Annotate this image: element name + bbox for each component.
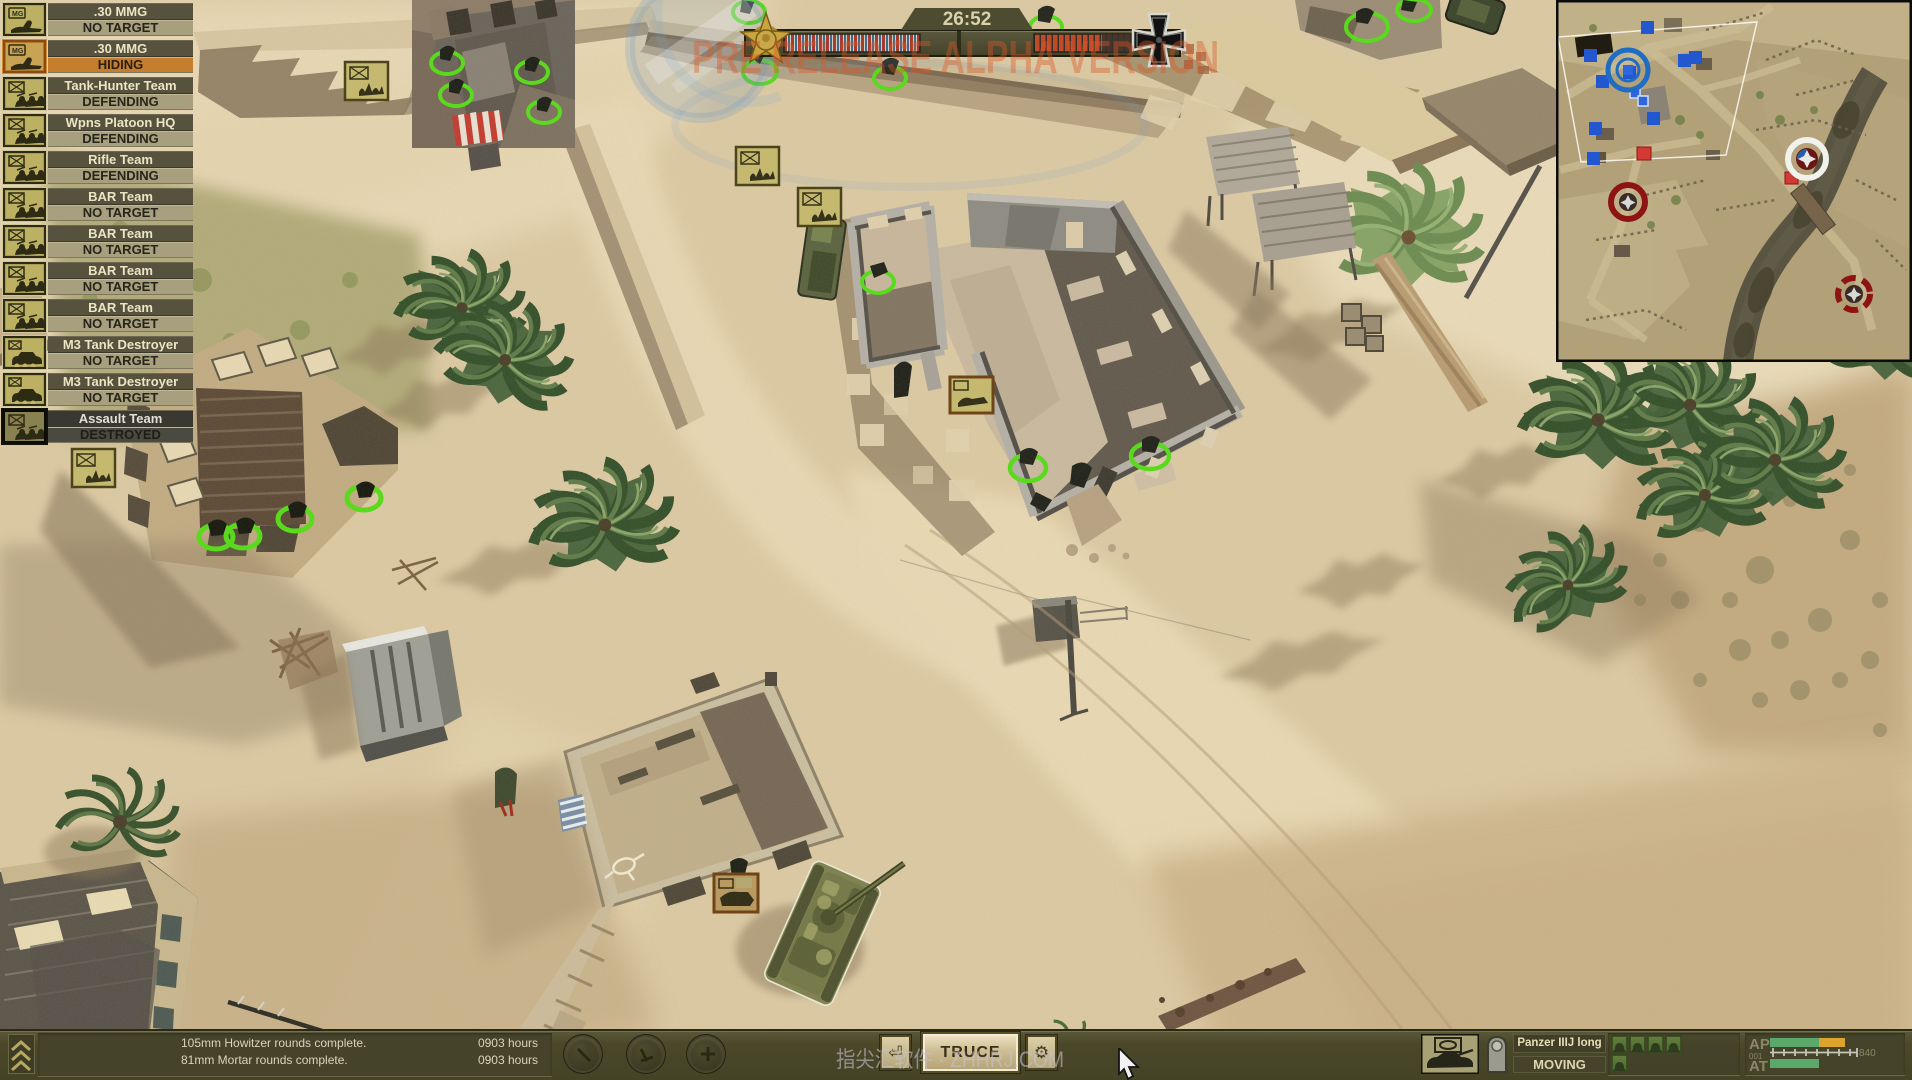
svg-text:840: 840 bbox=[1859, 1048, 1876, 1059]
svg-text:AT: AT bbox=[1749, 1058, 1768, 1075]
svg-text:AP: AP bbox=[1749, 1036, 1770, 1053]
